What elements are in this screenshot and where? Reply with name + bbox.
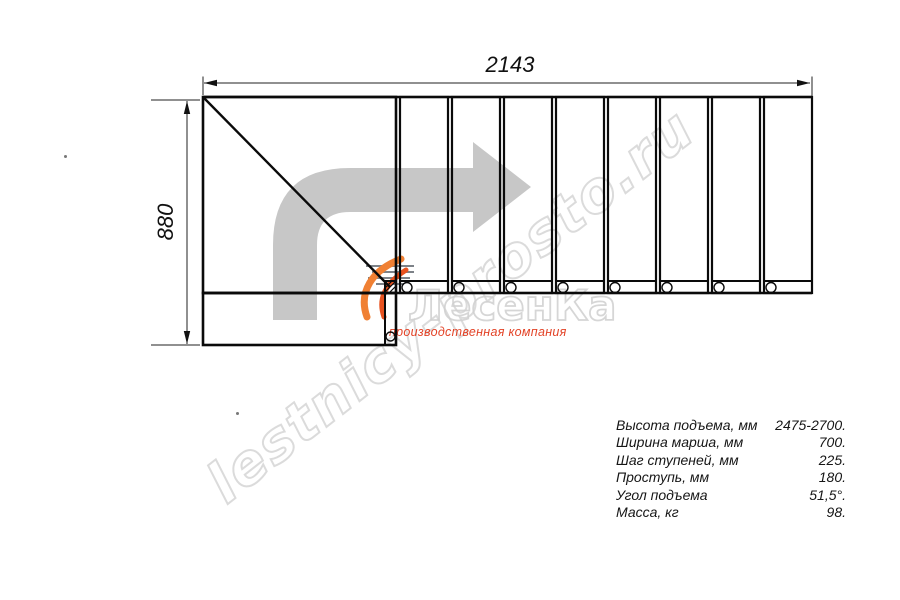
step-rect [712, 97, 760, 293]
spec-row-flight-width: Ширина марша, мм 700. [616, 434, 846, 451]
bolt-circle [662, 283, 672, 293]
dim-arrow-down-icon [184, 331, 190, 344]
step-rect [764, 97, 812, 293]
bolt-circle [766, 283, 776, 293]
spec-value: 2475-2700. [775, 417, 846, 434]
tread-7 [712, 97, 760, 293]
spec-value: 700. [819, 434, 846, 451]
spec-row-angle: Угол подъема 51,5°. [616, 487, 846, 504]
spec-value: 51,5°. [809, 487, 846, 504]
dim-arrow-right-icon [797, 80, 810, 86]
logo-name-text: ЛесенКа [408, 281, 616, 330]
tread-8 [764, 97, 812, 293]
spec-label: Угол подъема [616, 487, 708, 504]
staircase-drawing-page: lestnicy-prosto.ru ЛесенКа производствен… [0, 0, 900, 600]
spec-label: Проступь, мм [616, 469, 709, 486]
spec-label: Ширина марша, мм [616, 434, 743, 451]
logo-slogan-text: производственная компания [389, 325, 567, 339]
dim-width-label: 2143 [485, 52, 536, 77]
dim-arrow-up-icon [184, 101, 190, 114]
dim-height-label: 880 [153, 203, 178, 240]
spec-list: Высота подъема, мм 2475-2700. Ширина мар… [616, 417, 846, 521]
spec-row-mass: Масса, кг 98. [616, 504, 846, 521]
spec-label: Масса, кг [616, 504, 679, 521]
spec-label: Шаг ступеней, мм [616, 452, 739, 469]
spec-row-step-pitch: Шаг ступеней, мм 225. [616, 452, 846, 469]
bolt-circle [714, 283, 724, 293]
spec-value: 98. [827, 504, 846, 521]
spec-row-height: Высота подъема, мм 2475-2700. [616, 417, 846, 434]
spec-value: 225. [819, 452, 846, 469]
spec-value: 180. [819, 469, 846, 486]
image-speck [64, 155, 67, 158]
dim-arrow-left-icon [204, 80, 217, 86]
spec-row-tread: Проступь, мм 180. [616, 469, 846, 486]
image-speck [236, 412, 239, 415]
spec-label: Высота подъема, мм [616, 417, 758, 434]
